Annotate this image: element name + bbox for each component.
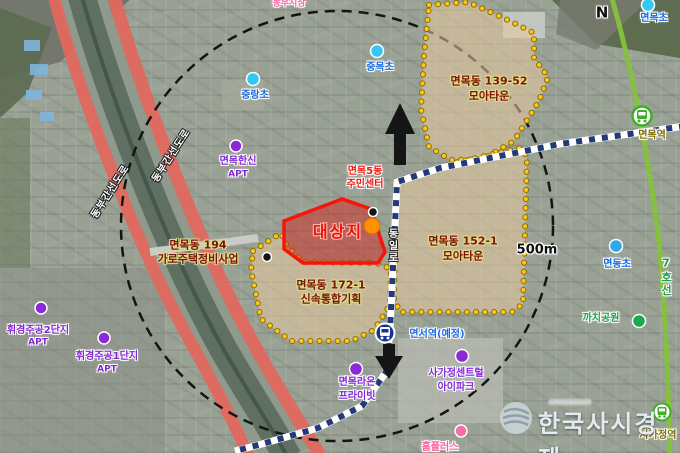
sagajeong-central-label-2: 아이파크 [438,383,475,393]
sagajeong-central-marker [456,350,469,363]
project-194-dot [263,253,272,262]
north-compass: N [596,6,609,21]
project-139-type: 모아타운 [469,91,509,102]
hwigyeong1-label-1: 휘경주공1단지 [76,352,138,362]
jungnang-elem-label: 중랑초 [241,91,269,101]
blue-roof-building [40,112,54,121]
raon-label-1: 면목라온 [339,378,376,388]
dongilro-label: 동일로 [386,228,396,264]
blue-roof-building [26,90,42,100]
community-center-dot [369,208,378,217]
forest-strip-left [0,118,30,268]
satellite-map: 동부시장 중랑초 중목초 면목초 면동초 면목한신 APT 휘경주공2단지 AP… [0,0,680,453]
jungmok-elem-marker [371,45,384,58]
blue-roof-building [24,40,40,51]
project-194-type: 가로주택정비사업 [158,254,239,265]
homeplus-label: 홈플러스 [422,443,459,453]
north-direction-arrow [385,103,415,165]
line7-label: 7호선 [661,257,672,298]
kkachi-park-label: 까치공원 [583,314,620,324]
watermark-slogan [548,399,592,405]
myeonseo-station-label: 면서역(예정) [409,330,464,340]
project-152-name: 면목동 152-1 [428,236,497,247]
raon-label-2: 프라이빗 [339,392,376,402]
myeonseo-station-icon [376,324,395,343]
kkachi-park-marker [633,315,646,328]
myeonmok-station-icon [633,107,652,126]
target-site-label: 대상지 [313,224,363,240]
hwigyeong2-label-2: APT [28,339,48,348]
raon-marker [350,363,363,376]
myeondong-elem-marker [610,240,623,253]
hanshin-apt-label-2: APT [228,171,248,180]
sagajeong-central-label-1: 사가정센트럴 [428,369,483,379]
community-center-label-2: 주민센터 [347,180,384,190]
hanshin-apt-label-1: 면목한신 [220,157,257,167]
orange-site-marker [364,218,380,234]
myeonmok-elem-marker [642,0,655,12]
jungmok-elem-label: 중목초 [366,63,394,73]
hanshin-apt-marker [230,140,242,152]
blue-roof-building [30,64,48,75]
subway-line7-path [611,0,670,453]
watermark-logo-icon [500,402,532,434]
jungnang-elem-marker [247,73,260,86]
dongbu-market-label: 동부시장 [272,0,305,9]
hwigyeong2-label-1: 휘경주공2단지 [7,326,69,336]
scale-label: 500m [517,244,558,257]
homeplus-marker [455,425,467,437]
moatown-152-1-polygon [394,148,527,312]
community-center-label-1: 면목5동 [348,167,383,177]
project-152-type: 모아타운 [443,251,483,262]
watermark: 한국사시경제 [538,404,680,453]
myeonmok-elem-label: 면목초 [640,14,668,24]
project-172-name: 면목동 172-1 [296,280,365,291]
project-172-type: 신속통합기획 [301,294,362,305]
watermark-text: 한국사시경제 [538,404,680,453]
project-139-name: 면목동 139-52 [450,76,527,87]
project-194-name: 면목동 194 [169,240,226,251]
myeondong-elem-label: 면동초 [603,260,631,270]
myeonmok-station-label: 면목역 [638,131,666,141]
hwigyeong1-label-2: APT [97,366,117,375]
hwigyeong2-marker [35,302,47,314]
hwigyeong1-marker [98,332,110,344]
